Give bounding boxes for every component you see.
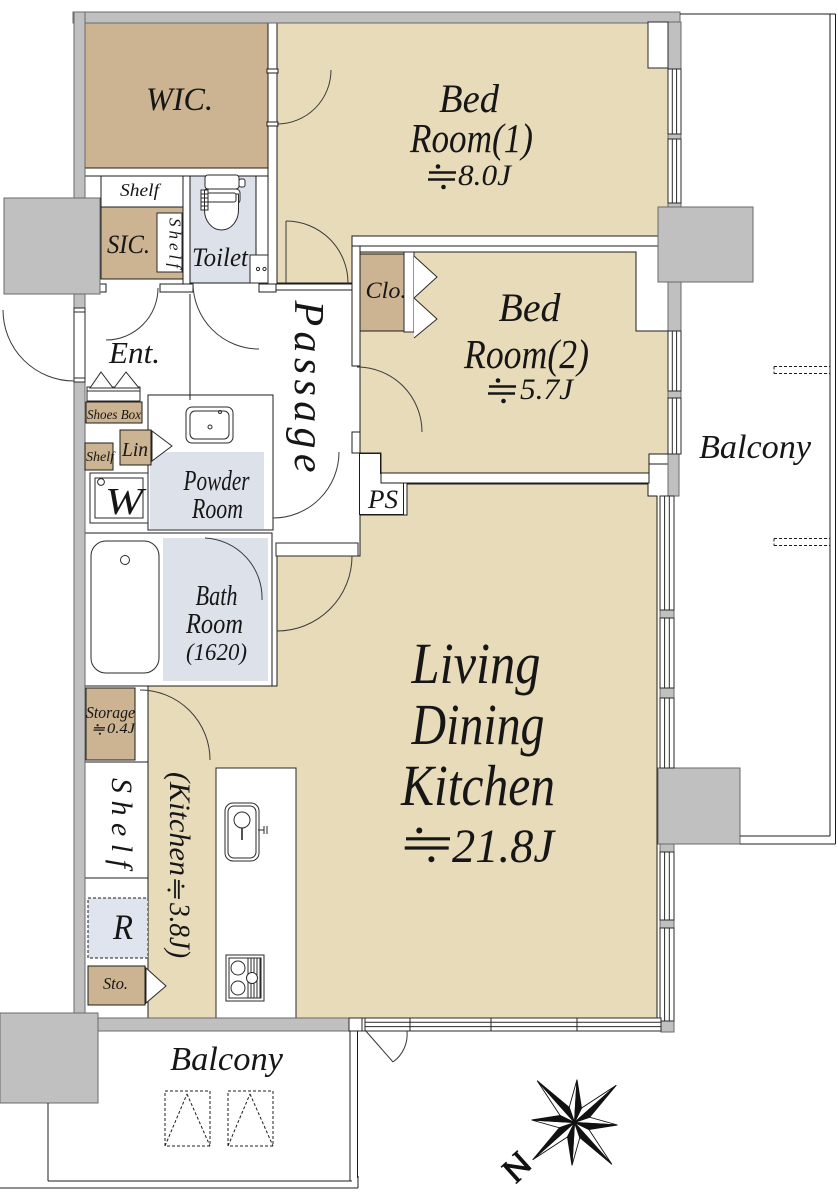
svg-text:Lin: Lin bbox=[121, 439, 148, 461]
svg-text:Shoes Box: Shoes Box bbox=[87, 408, 142, 423]
svg-text:Balcony: Balcony bbox=[699, 429, 812, 466]
svg-text:PS: PS bbox=[367, 485, 398, 514]
svg-text:Balcony: Balcony bbox=[170, 1041, 284, 1078]
svg-text:R: R bbox=[112, 907, 133, 947]
svg-text:Room: Room bbox=[185, 609, 243, 640]
svg-text:Room: Room bbox=[191, 494, 243, 525]
svg-text:(1620): (1620) bbox=[186, 640, 247, 666]
svg-text:WIC.: WIC. bbox=[146, 82, 213, 118]
svg-text:W: W bbox=[105, 481, 147, 523]
svg-text:0.4J: 0.4J bbox=[107, 721, 136, 737]
svg-text:Shelf: Shelf bbox=[86, 450, 116, 465]
svg-text:(Kitchen: (Kitchen bbox=[163, 772, 196, 876]
svg-text:Toilet: Toilet bbox=[192, 243, 249, 272]
svg-text:3.8J): 3.8J) bbox=[163, 902, 196, 958]
svg-text:Ent.: Ent. bbox=[108, 335, 160, 370]
svg-text:Sto.: Sto. bbox=[103, 974, 128, 993]
svg-text:Dining: Dining bbox=[411, 692, 545, 757]
svg-text:Room(2): Room(2) bbox=[463, 331, 589, 377]
svg-text:Powder: Powder bbox=[183, 466, 250, 497]
svg-text:8.0J: 8.0J bbox=[458, 159, 513, 192]
svg-text:Bed: Bed bbox=[499, 285, 562, 330]
svg-text:5.7J: 5.7J bbox=[520, 373, 575, 406]
svg-text:21.8J: 21.8J bbox=[452, 820, 557, 873]
svg-text:Room(1): Room(1) bbox=[409, 115, 533, 161]
svg-text:Kitchen: Kitchen bbox=[400, 753, 555, 818]
svg-text:Shelf: Shelf bbox=[120, 180, 162, 200]
svg-text:Passage: Passage bbox=[285, 300, 331, 473]
svg-text:Storage: Storage bbox=[86, 703, 135, 722]
svg-text:Clo.: Clo. bbox=[366, 278, 407, 303]
svg-text:SIC.: SIC. bbox=[107, 230, 150, 259]
svg-text:Bath: Bath bbox=[196, 581, 238, 612]
svg-text:Living: Living bbox=[411, 631, 541, 696]
svg-text:Shelf: Shelf bbox=[166, 218, 185, 270]
